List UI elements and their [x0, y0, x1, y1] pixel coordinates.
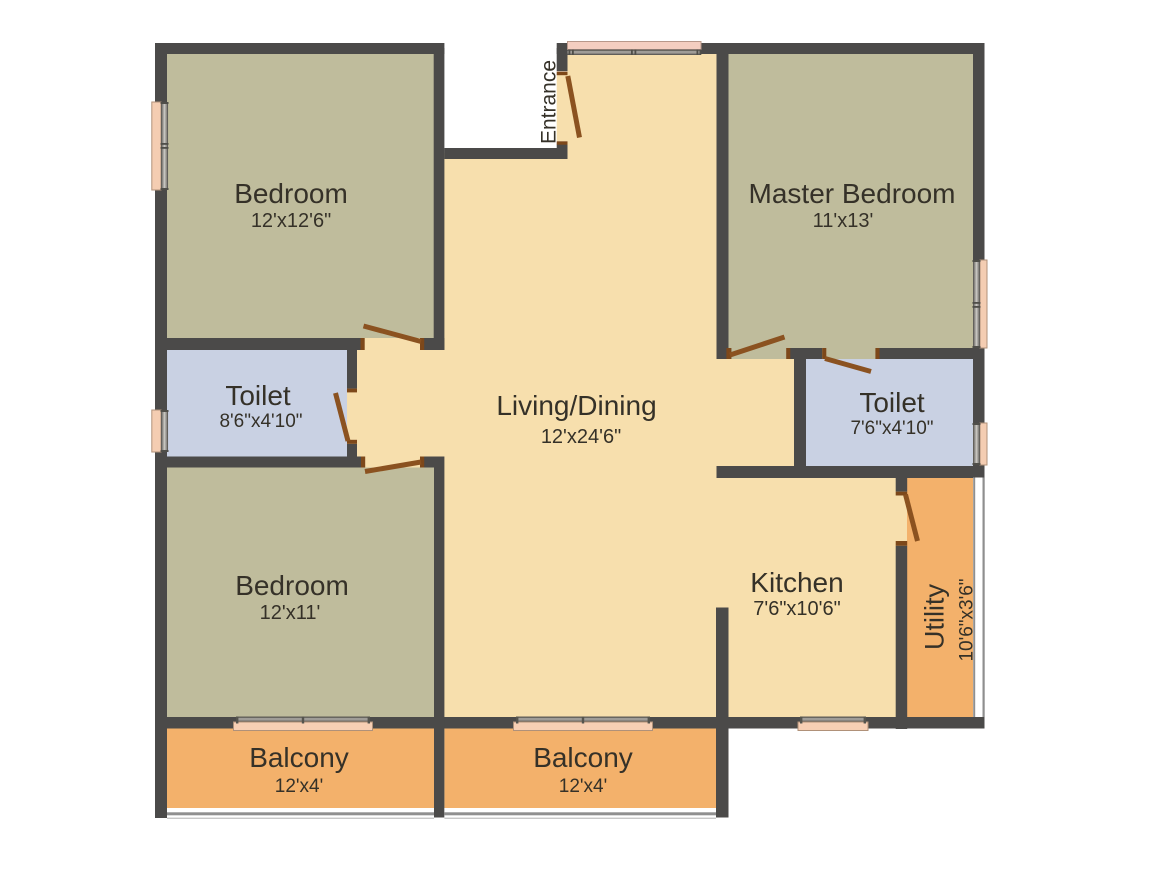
svg-text:11'x13': 11'x13': [813, 210, 874, 232]
svg-text:Balcony: Balcony: [249, 742, 349, 773]
svg-text:12'x24'6": 12'x24'6": [541, 426, 621, 448]
svg-text:Living/Dining: Living/Dining: [496, 390, 656, 421]
svg-text:Bedroom: Bedroom: [235, 570, 349, 601]
svg-text:8'6"x4'10": 8'6"x4'10": [219, 411, 302, 432]
svg-text:Kitchen: Kitchen: [750, 567, 843, 598]
svg-text:12'x11': 12'x11': [260, 602, 321, 624]
svg-text:12'x12'6": 12'x12'6": [251, 210, 331, 232]
svg-text:12'x4': 12'x4': [275, 776, 323, 797]
svg-text:Balcony: Balcony: [533, 742, 633, 773]
svg-text:Toilet: Toilet: [859, 387, 925, 418]
svg-text:12'x4': 12'x4': [559, 776, 607, 797]
svg-text:Utility: Utility: [920, 584, 950, 650]
svg-text:Toilet: Toilet: [225, 380, 291, 411]
svg-text:7'6"x10'6": 7'6"x10'6": [753, 598, 840, 620]
svg-text:Bedroom: Bedroom: [234, 178, 348, 209]
svg-text:Master Bedroom: Master Bedroom: [749, 178, 956, 209]
svg-text:7'6"x4'10": 7'6"x4'10": [850, 418, 933, 439]
svg-text:Entrance: Entrance: [538, 60, 561, 144]
svg-text:10'6"x3'6": 10'6"x3'6": [957, 578, 978, 661]
